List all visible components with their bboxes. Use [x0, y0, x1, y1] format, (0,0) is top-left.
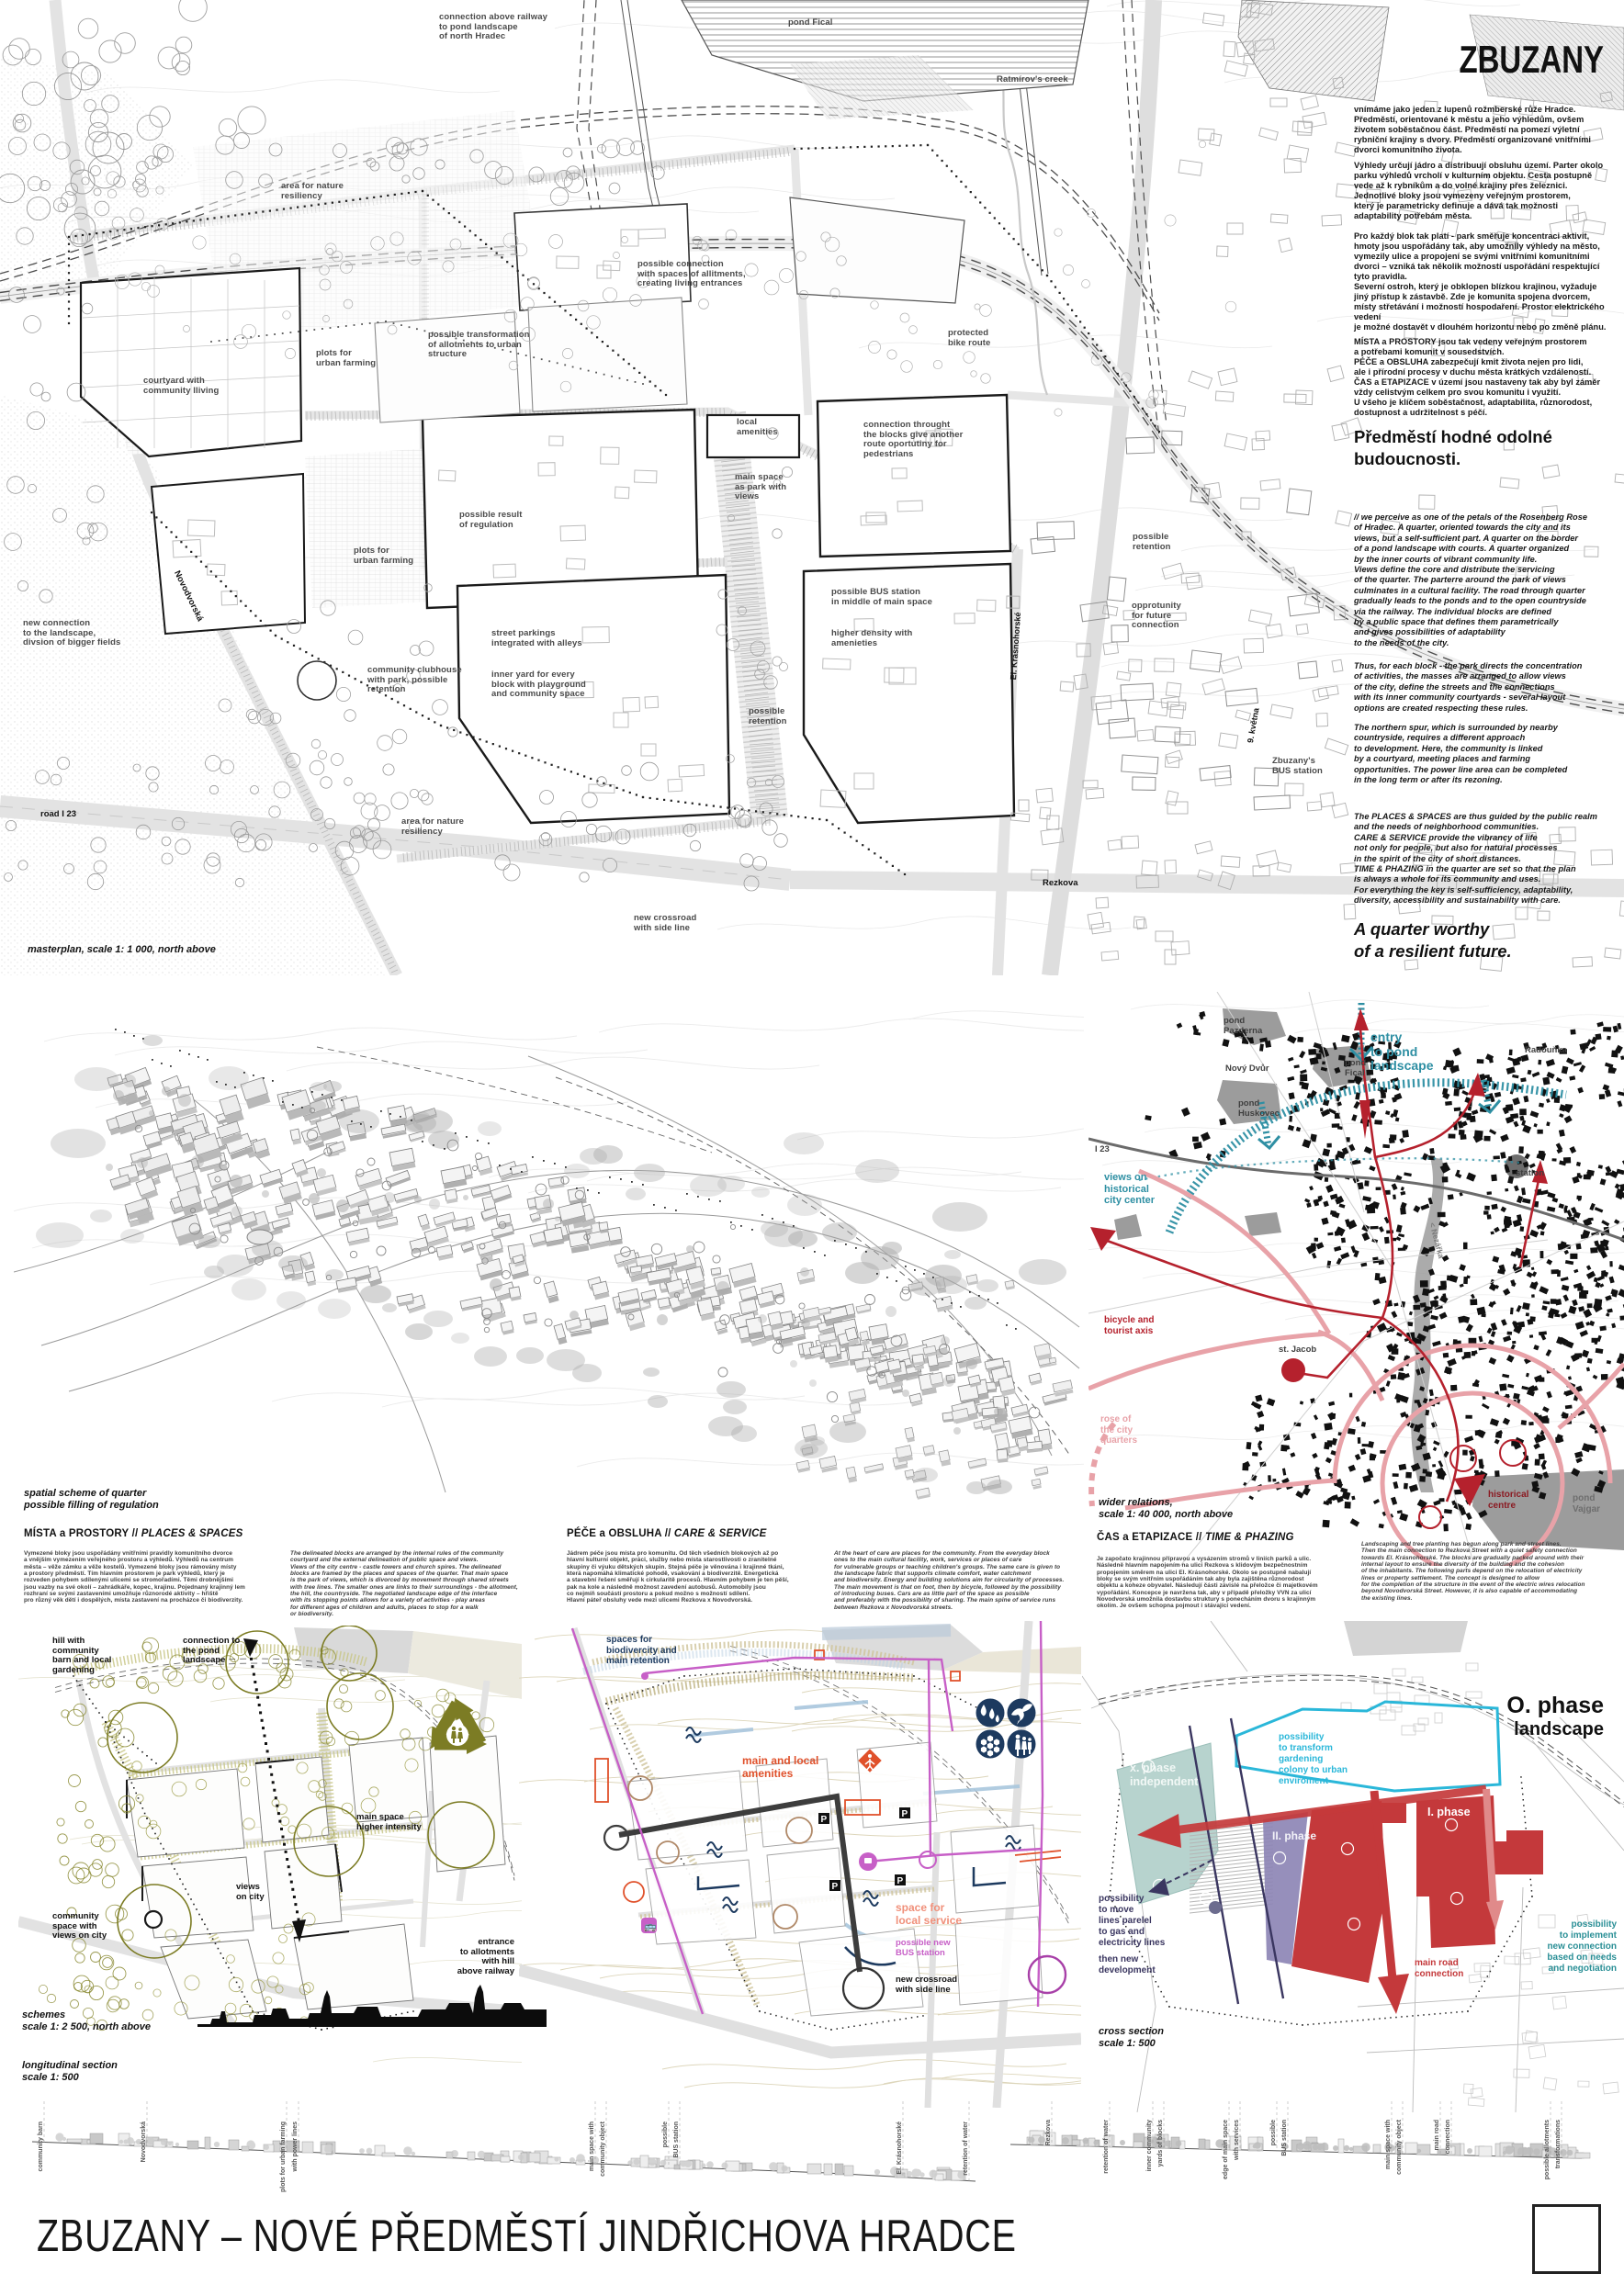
svg-text:main road: main road: [1434, 2120, 1440, 2150]
svg-text:with power lines: with power lines: [292, 2122, 299, 2173]
svg-text:P: P: [902, 1809, 908, 1819]
svg-text:plots for urban farming: plots for urban farming: [280, 2122, 287, 2192]
svg-text:Novodvorská: Novodvorská: [141, 2122, 147, 2162]
svg-text:inner community: inner community: [1146, 2120, 1153, 2172]
svg-text:edge of main space: edge of main space: [1223, 2120, 1229, 2179]
svg-text:possible: possible: [662, 2122, 669, 2148]
svg-text:community object: community object: [1396, 2119, 1403, 2175]
svg-text:connection: connection: [1445, 2120, 1451, 2154]
svg-text:possible allotments: possible allotments: [1544, 2120, 1551, 2179]
svg-text:P: P: [832, 1882, 839, 1892]
svg-text:P: P: [821, 1815, 828, 1825]
svg-text:retention of water: retention of water: [963, 2122, 969, 2176]
svg-text:BUS station: BUS station: [673, 2122, 680, 2158]
svg-text:main space with: main space with: [1385, 2120, 1392, 2169]
svg-text:P: P: [897, 1876, 904, 1886]
svg-text:Rezkova: Rezkova: [1045, 2120, 1052, 2146]
svg-text:with services: with services: [1234, 2120, 1240, 2161]
svg-text:retention of water: retention of water: [1103, 2120, 1110, 2174]
svg-text:BUS station: BUS station: [1281, 2120, 1288, 2156]
svg-text:transformations: transformations: [1555, 2120, 1562, 2168]
svg-text:community barn: community barn: [38, 2122, 44, 2171]
svg-text:possible: possible: [1270, 2120, 1277, 2146]
svg-text:🚌: 🚌: [644, 1921, 657, 1932]
svg-text:community object: community object: [600, 2121, 606, 2177]
svg-text:yards of blocks: yards of blocks: [1157, 2120, 1164, 2167]
svg-text:main space with: main space with: [589, 2122, 595, 2171]
svg-text:El. Krásnohorské: El. Krásnohorské: [897, 2122, 903, 2175]
